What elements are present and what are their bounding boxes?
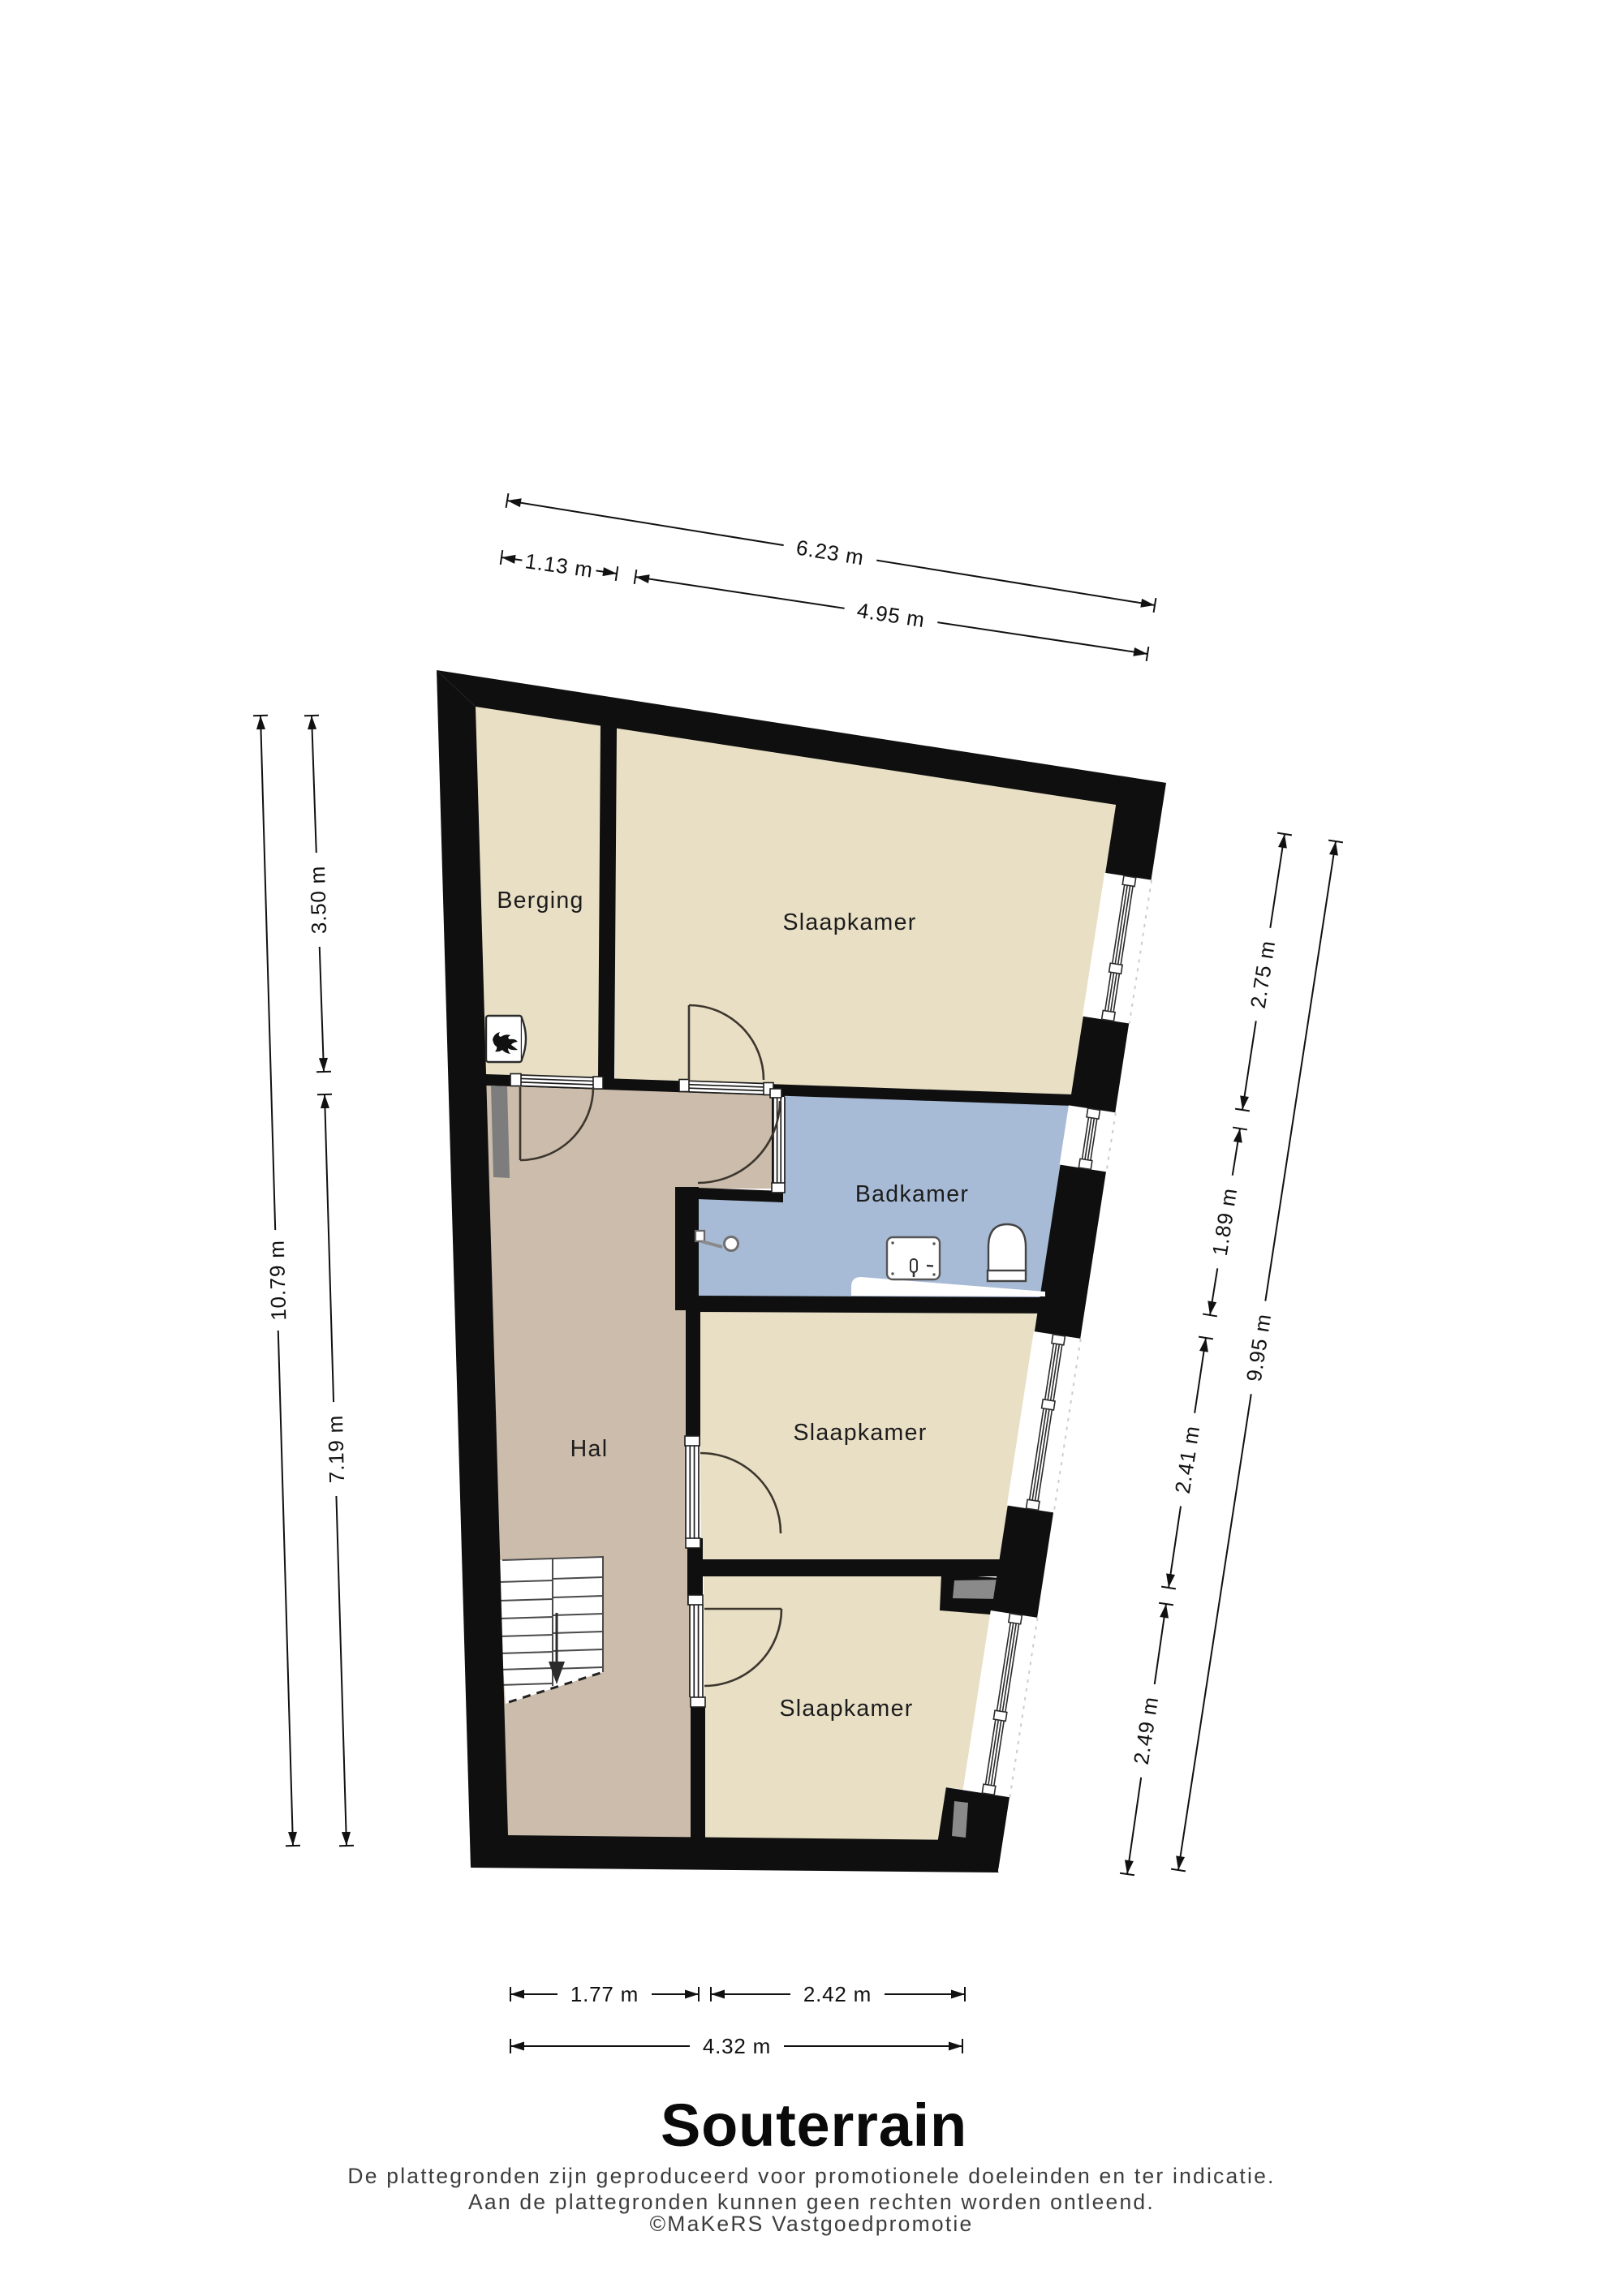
svg-text:Badkamer: Badkamer	[855, 1181, 969, 1207]
svg-text:1.77 m: 1.77 m	[570, 1982, 639, 2006]
svg-text:4.32 m: 4.32 m	[703, 2034, 771, 2058]
svg-text:3.50 m: 3.50 m	[305, 865, 331, 934]
svg-text:7.19 m: 7.19 m	[323, 1414, 349, 1483]
svg-text:Souterrain: Souterrain	[661, 2092, 967, 2159]
svg-text:Slaapkamer: Slaapkamer	[782, 909, 916, 935]
svg-text:Berging: Berging	[497, 888, 583, 914]
svg-text:Aan de plattegronden kunnen ge: Aan de plattegronden kunnen geen rechten…	[468, 2190, 1155, 2214]
svg-text:De plattegronden zijn geproduc: De plattegronden zijn geproduceerd voor …	[347, 2164, 1275, 2188]
svg-text:2.42 m: 2.42 m	[803, 1982, 872, 2006]
svg-text:Hal: Hal	[570, 1436, 609, 1462]
svg-text:©MaKeRS Vastgoedpromotie: ©MaKeRS Vastgoedpromotie	[650, 2212, 974, 2236]
svg-text:10.79 m: 10.79 m	[265, 1240, 291, 1321]
svg-text:Slaapkamer: Slaapkamer	[779, 1696, 913, 1722]
svg-text:Slaapkamer: Slaapkamer	[793, 1420, 927, 1446]
